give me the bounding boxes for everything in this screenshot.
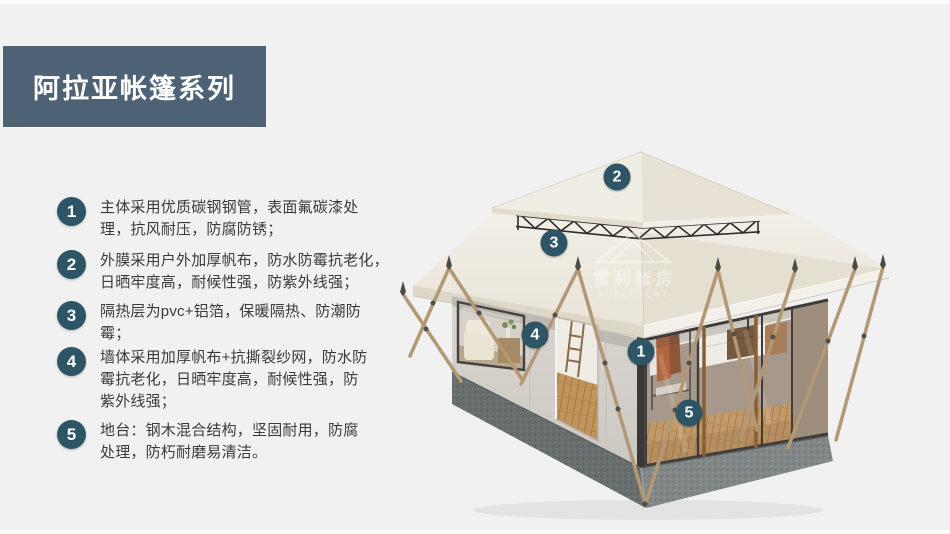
feature-number-badge: 5	[57, 420, 86, 449]
feature-item-3: 3隔热层为pvc+铝箔，保暖隔热、防潮防霉；	[57, 301, 361, 345]
feature-number-badge: 1	[57, 197, 86, 226]
feature-text-line: 地台：钢木混合结构，坚固耐用，防腐	[100, 420, 358, 442]
feature-number-badge: 2	[57, 250, 86, 279]
watermark-cn: 雪利帐房	[593, 268, 677, 288]
feature-item-1: 1主体采用优质碳钢钢管，表面氟碳漆处理，抗风耐压，防腐防锈；	[57, 197, 358, 241]
feature-item-2: 2外膜采用户外加厚帆布，防水防霉抗老化，日晒牢度高，耐候性强，防紫外线强；	[57, 250, 389, 294]
flowers	[502, 322, 508, 328]
feature-text: 地台：钢木混合结构，坚固耐用，防腐处理，防朽耐磨易清洁。	[100, 420, 358, 464]
feature-text: 外膜采用户外加厚帆布，防水防霉抗老化，日晒牢度高，耐候性强，防紫外线强；	[100, 250, 389, 294]
watermark-en: XUELI TENT	[598, 290, 669, 299]
tent-illustration: 雪利帐房 XUELI TENT	[395, 128, 950, 528]
feature-list: 1主体采用优质碳钢钢管，表面氟碳漆处理，抗风耐压，防腐防锈；2外膜采用户外加厚帆…	[57, 0, 427, 534]
feature-text-line: 外膜采用户外加厚帆布，防水防霉抗老化，	[100, 250, 389, 272]
armchair	[464, 330, 494, 360]
feature-text-line: 霉抗老化，日晒牢度高，耐候性强，防	[100, 369, 367, 391]
feature-text-line: 隔热层为pvc+铝箔，保暖隔热、防潮防	[100, 301, 361, 323]
feature-text: 墙体采用加厚帆布+抗撕裂纱网，防水防霉抗老化，日晒牢度高，耐候性强，防紫外线强；	[100, 347, 367, 413]
feature-number-badge: 4	[57, 347, 86, 376]
feature-text-line: 日晒牢度高，耐候性强，防紫外线强；	[100, 272, 389, 294]
feature-item-4: 4墙体采用加厚帆布+抗撕裂纱网，防水防霉抗老化，日晒牢度高，耐候性强，防紫外线强…	[57, 347, 367, 413]
feature-item-5: 5地台：钢木混合结构，坚固耐用，防腐处理，防朽耐磨易清洁。	[57, 420, 358, 464]
feature-text-line: 处理，防朽耐磨易清洁。	[100, 442, 358, 464]
feature-number-badge: 3	[57, 301, 86, 330]
feature-text: 主体采用优质碳钢钢管，表面氟碳漆处理，抗风耐压，防腐防锈；	[100, 197, 358, 241]
feature-text-line: 墙体采用加厚帆布+抗撕裂纱网，防水防	[100, 347, 367, 369]
upper-roof	[492, 152, 790, 228]
feature-text: 隔热层为pvc+铝箔，保暖隔热、防潮防霉；	[100, 301, 361, 345]
corner-post	[637, 337, 647, 470]
feature-text-line: 主体采用优质碳钢钢管，表面氟碳漆处	[100, 197, 358, 219]
feature-text-line: 紫外线强；	[100, 391, 367, 413]
feature-text-line: 理，抗风耐压，防腐防锈；	[100, 219, 358, 241]
feature-text-line: 霉；	[100, 323, 361, 345]
